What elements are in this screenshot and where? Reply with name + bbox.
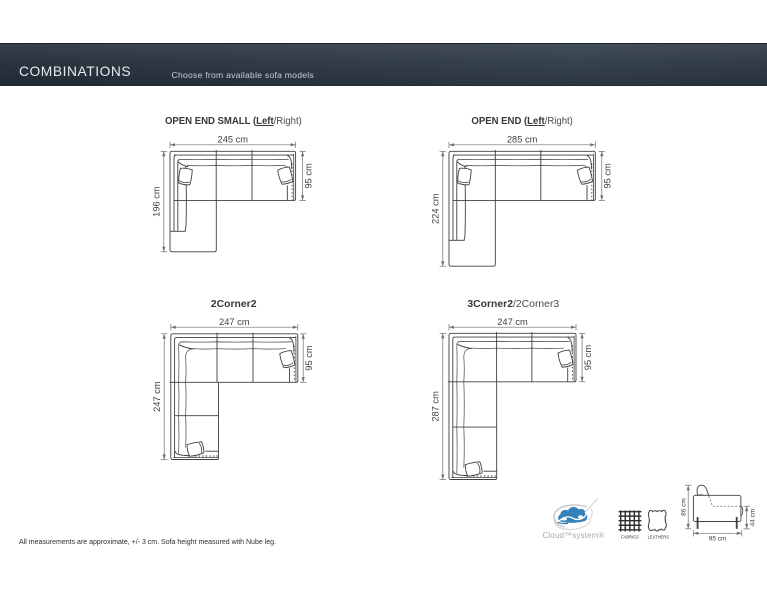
svg-text:FABRICS: FABRICS bbox=[621, 535, 639, 540]
svg-text:95 cm: 95 cm bbox=[304, 345, 314, 371]
svg-text:287 cm: 287 cm bbox=[431, 391, 441, 422]
svg-text:Cloud™system®: Cloud™system® bbox=[543, 531, 605, 540]
svg-text:95 cm: 95 cm bbox=[603, 163, 613, 189]
svg-text:247 cm: 247 cm bbox=[152, 381, 162, 412]
svg-text:247 cm: 247 cm bbox=[219, 317, 250, 327]
svg-text:224 cm: 224 cm bbox=[431, 193, 441, 224]
svg-text:285 cm: 285 cm bbox=[507, 135, 538, 145]
svg-text:95 cm: 95 cm bbox=[304, 163, 314, 189]
svg-text:95 cm: 95 cm bbox=[709, 536, 727, 543]
svg-text:95 cm: 95 cm bbox=[583, 345, 593, 371]
svg-text:247 cm: 247 cm bbox=[497, 317, 528, 327]
svg-text:LEATHERS: LEATHERS bbox=[648, 535, 670, 540]
svg-text:44 cm: 44 cm bbox=[750, 509, 757, 527]
svg-text:86 cm: 86 cm bbox=[681, 498, 688, 516]
svg-text:196 cm: 196 cm bbox=[152, 186, 162, 217]
svg-text:245 cm: 245 cm bbox=[218, 135, 249, 145]
